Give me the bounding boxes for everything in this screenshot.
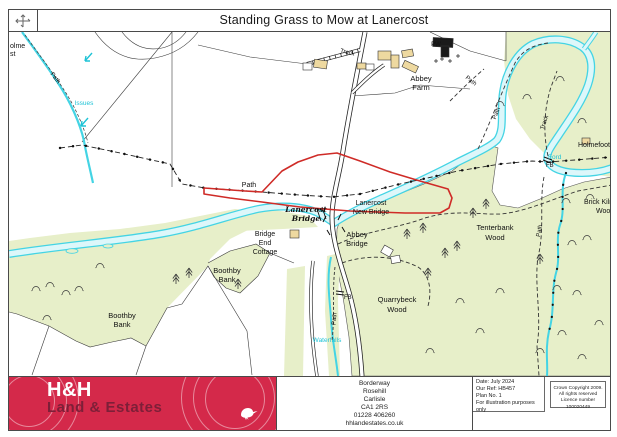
plan-info-zone: Date: July 2024 Our Ref: HB457 Plan No. … xyxy=(473,377,610,430)
brand-banner: H&H Land & Estates xyxy=(9,377,276,430)
site-plan-map: olme st Path Issues Track PW Abbey Farm … xyxy=(9,32,610,376)
map-label-bridge-end-cottage: Bridge xyxy=(255,231,275,238)
map-label-quarrybeck-wood: Wood xyxy=(387,305,406,314)
page-title: Standing Grass to Mow at Lanercost xyxy=(38,10,610,31)
footer: H&H Land & Estates Borderway Rosehill Ca… xyxy=(9,376,610,430)
address-line: CA1 2RS xyxy=(277,404,472,412)
map-label-lanercost-bridge: Bridge xyxy=(291,214,321,223)
plan-number: Plan No. 1 xyxy=(476,393,541,400)
plan-info-box: Date: July 2024 Our Ref: HB457 Plan No. … xyxy=(473,377,545,412)
map-label-tenterbank-wood: Wood xyxy=(485,233,504,242)
title-bar: Standing Grass to Mow at Lanercost xyxy=(9,10,610,32)
map-label-brick-kiln-wood: Brick Kiln xyxy=(584,199,610,206)
brand-name: H&H xyxy=(47,380,162,400)
map-label-boothby-bank: Bank xyxy=(218,275,235,284)
map-label-fb: FB xyxy=(344,295,352,301)
north-compass-icon xyxy=(9,10,38,31)
stream-north-west xyxy=(22,32,93,183)
map-label-brick-kiln-wood: Wood xyxy=(596,208,610,215)
map-label-abbey-farm: Farm xyxy=(412,83,430,92)
map-label-path: Path xyxy=(242,182,257,189)
map-label-abbey-bridge: Abbey xyxy=(346,230,368,239)
map-label-pw: PW xyxy=(431,42,441,48)
map-label-lanercost-new-bridge: Lanercost xyxy=(356,200,387,207)
map-label-issues: Issues xyxy=(75,100,95,107)
map-label-boothby-bank: Boothby xyxy=(213,266,241,275)
plan-date: Date: July 2024 xyxy=(476,379,541,386)
map-label-bridge-end-cottage: Cottage xyxy=(253,249,278,256)
map-label-waterfalls: Waterfalls xyxy=(313,337,342,344)
map-label: olme xyxy=(10,43,25,50)
map-label-boothby-bank: Boothby xyxy=(108,311,136,320)
plan-disclaimer: For illustration purposes only xyxy=(476,400,541,414)
map-label-boothby-bank: Bank xyxy=(113,320,130,329)
brand-tagline: Land & Estates xyxy=(47,400,162,416)
map-label-tenterbank-wood: Tenterbank xyxy=(476,223,513,232)
map-label-quarrybeck-wood: Quarrybeck xyxy=(378,295,417,304)
map-label-abbey-bridge: Bridge xyxy=(346,239,368,248)
address-line: Carlisle xyxy=(277,396,472,404)
map-label-bridge-end-cottage: End xyxy=(259,240,272,247)
woodland-areas xyxy=(9,32,610,376)
map-canvas: olme st Path Issues Track PW Abbey Farm … xyxy=(9,32,610,376)
map-label-ford: Ford xyxy=(548,154,562,161)
map-label-path: Path xyxy=(331,313,338,326)
copyright-line: Licence number 100020449 xyxy=(551,398,605,410)
map-label-lanercost-new-bridge: New Bridge xyxy=(353,209,389,216)
tenterbank-wood-area xyxy=(336,144,610,376)
copyright-box: Crown Copyright 2009. All rights reserve… xyxy=(550,381,606,408)
office-address: Borderway Rosehill Carlisle CA1 2RS 0122… xyxy=(276,377,473,430)
address-line: Borderway xyxy=(277,380,472,388)
plan-ref: Our Ref: HB457 xyxy=(476,386,541,393)
address-line: Rosehill xyxy=(277,388,472,396)
phone-number: 01228 406260 xyxy=(277,412,472,420)
map-label: st xyxy=(10,51,16,58)
map-label-abbey-farm: Abbey xyxy=(410,74,432,83)
plan-sheet: Standing Grass to Mow at Lanercost xyxy=(8,9,611,431)
bird-logo-icon xyxy=(238,403,260,426)
map-label-lanercost-bridge: Lanercost xyxy=(284,205,327,214)
west-lane-strip xyxy=(284,266,305,376)
website: hhlandestates.co.uk xyxy=(277,420,472,428)
issues-arrow-icon xyxy=(81,53,92,126)
map-label-fb: FB xyxy=(546,163,554,169)
map-label-holmefoot: Holmefoot xyxy=(578,142,610,149)
